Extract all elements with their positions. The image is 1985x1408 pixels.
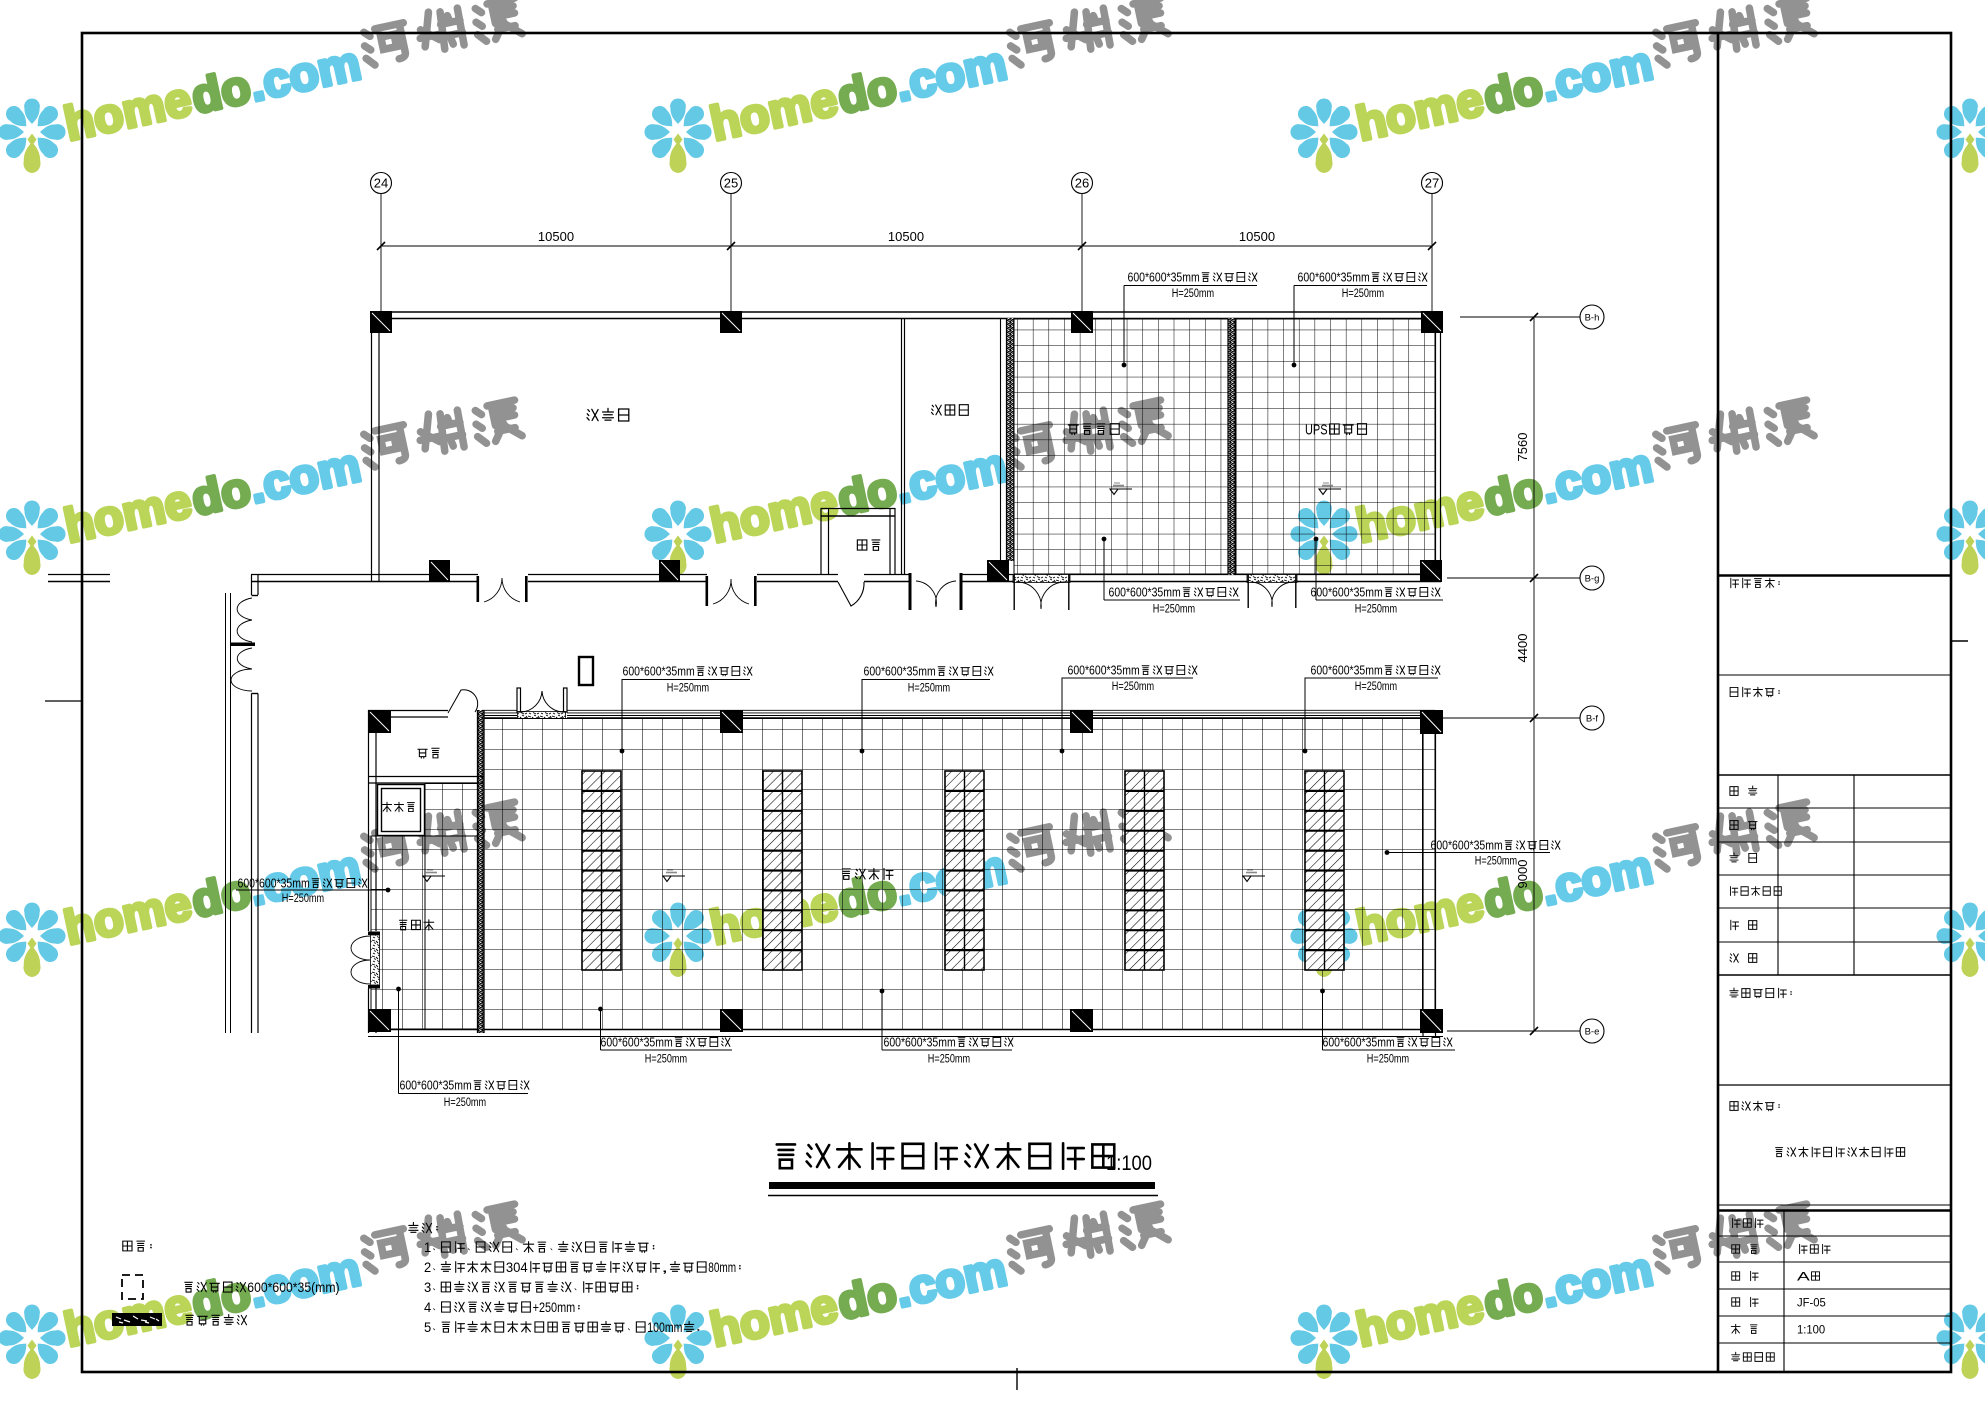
svg-text:600*600*35mm: 600*600*35mm [601,1036,673,1050]
svg-text:600*600*35mm: 600*600*35mm [1323,1036,1395,1050]
svg-text:B-e: B-e [1585,1027,1600,1038]
svg-text:600*600*35mm: 600*600*35mm [1298,271,1370,285]
svg-text:H=250mm: H=250mm [1367,1051,1409,1065]
svg-text:H=250mm: H=250mm [1355,601,1397,615]
svg-text:JF-05: JF-05 [1797,1296,1826,1310]
svg-text:H=250mm: H=250mm [928,1051,970,1065]
svg-text:600*600*35mm: 600*600*35mm [864,665,936,679]
svg-text:B-g: B-g [1585,574,1600,585]
svg-text:80mm: 80mm [708,1260,736,1276]
svg-text:H=250mm: H=250mm [1153,601,1195,615]
svg-text:2: 2 [424,1260,431,1276]
svg-text:H=250mm: H=250mm [1112,679,1154,693]
svg-text:10500: 10500 [888,229,924,244]
svg-text:600*600*35mm: 600*600*35mm [884,1036,956,1050]
svg-text:600*600*35mm: 600*600*35mm [1311,586,1383,600]
svg-text:5: 5 [424,1320,431,1336]
svg-text:H=250mm: H=250mm [444,1095,486,1109]
svg-text:B-f: B-f [1586,714,1599,725]
svg-text:9000: 9000 [1515,860,1530,889]
svg-text:B-h: B-h [1585,313,1600,324]
svg-text:+250mm: +250mm [533,1300,576,1316]
svg-text:A: A [1797,1270,1811,1284]
svg-text:1:100: 1:100 [1106,1152,1152,1175]
svg-text:4: 4 [424,1300,431,1316]
svg-text:H=250mm: H=250mm [908,680,950,694]
svg-text:600*600*35mm: 600*600*35mm [1311,664,1383,678]
svg-text:600*600*35mm: 600*600*35mm [400,1079,472,1093]
svg-text:UPS: UPS [1305,422,1328,438]
svg-text:600*600*35mm: 600*600*35mm [623,665,695,679]
svg-text:10500: 10500 [1239,229,1275,244]
svg-text:600*600*35mm: 600*600*35mm [238,877,310,891]
svg-text:600*600*35mm: 600*600*35mm [1109,586,1181,600]
svg-text:H=250mm: H=250mm [1342,286,1384,300]
svg-text:H=250mm: H=250mm [1355,679,1397,693]
svg-text:25: 25 [724,176,738,191]
svg-text:600*600*35mm: 600*600*35mm [1431,839,1503,853]
svg-text:H=250mm: H=250mm [1172,286,1214,300]
svg-text:600*600*35mm: 600*600*35mm [1128,271,1200,285]
svg-text:4400: 4400 [1515,634,1530,663]
svg-text:10500: 10500 [538,229,574,244]
svg-text:H=250mm: H=250mm [667,680,709,694]
svg-text:,: , [661,1260,668,1276]
svg-text:304: 304 [506,1260,528,1276]
svg-text:7560: 7560 [1515,433,1530,462]
svg-text:3: 3 [424,1280,431,1296]
svg-text:26: 26 [1075,176,1089,191]
svg-text:H=250mm: H=250mm [282,891,324,905]
svg-text:24: 24 [374,176,388,191]
svg-text:600*600*35mm: 600*600*35mm [1068,664,1140,678]
svg-text:H=250mm: H=250mm [1475,853,1517,867]
svg-text:1: 1 [424,1240,431,1256]
svg-text:H=250mm: H=250mm [645,1051,687,1065]
svg-text:27: 27 [1425,176,1439,191]
svg-text:1:100: 1:100 [1797,1323,1825,1337]
svg-text:100mm: 100mm [647,1320,682,1336]
svg-text:600*600*35(mm): 600*600*35(mm) [247,1279,339,1295]
